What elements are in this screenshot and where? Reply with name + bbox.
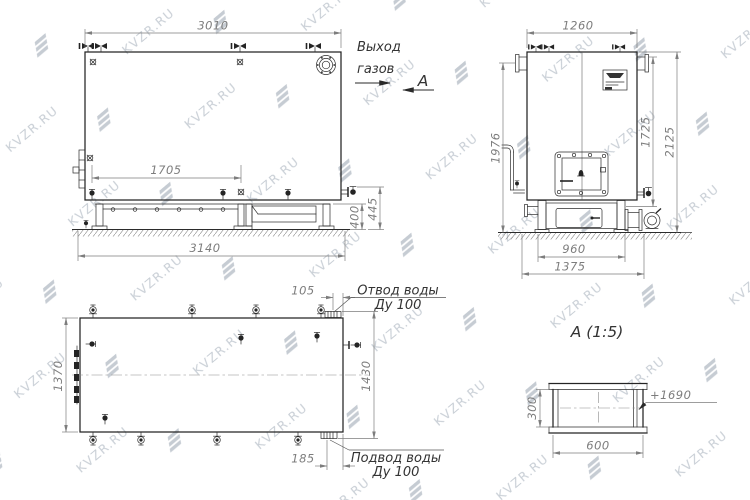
svg-text:Подвод воды: Подвод воды: [351, 451, 441, 466]
drawing-canvas: KVZR.RU: [0, 0, 750, 500]
gas-outlet-label: Выход газов: [355, 40, 401, 83]
svg-text:400: 400: [348, 205, 362, 228]
svg-text:445: 445: [366, 197, 380, 220]
svg-text:2125: 2125: [663, 126, 677, 157]
svg-text:+1690: +1690: [650, 388, 691, 402]
svg-text:1430: 1430: [359, 360, 373, 391]
svg-text:газов: газов: [357, 62, 394, 77]
svg-text:Ду 100: Ду 100: [374, 298, 422, 313]
svg-text:Выход: Выход: [357, 40, 401, 55]
detail-title: А (1:5): [570, 323, 624, 341]
svg-text:185: 185: [291, 452, 314, 466]
ground-line-front: [498, 233, 692, 240]
svg-text:1725: 1725: [639, 116, 653, 147]
svg-text:300: 300: [525, 396, 539, 419]
ground-line-side: [72, 230, 350, 237]
svg-text:А: А: [417, 72, 429, 90]
svg-text:105: 105: [291, 284, 314, 298]
svg-text:600: 600: [586, 439, 609, 453]
boiler-technical-drawing: KVZR.RU: [0, 0, 750, 500]
svg-text:3010: 3010: [197, 19, 228, 33]
svg-text:960: 960: [562, 242, 585, 256]
svg-text:Ду 100: Ду 100: [372, 465, 420, 480]
svg-text:1375: 1375: [554, 260, 585, 274]
svg-text:1976: 1976: [489, 132, 503, 163]
svg-text:1370: 1370: [51, 360, 65, 391]
svg-text:1260: 1260: [562, 19, 593, 33]
svg-text:3140: 3140: [189, 241, 220, 255]
svg-text:Отвод воды: Отвод воды: [357, 284, 438, 299]
svg-text:1705: 1705: [150, 163, 181, 177]
